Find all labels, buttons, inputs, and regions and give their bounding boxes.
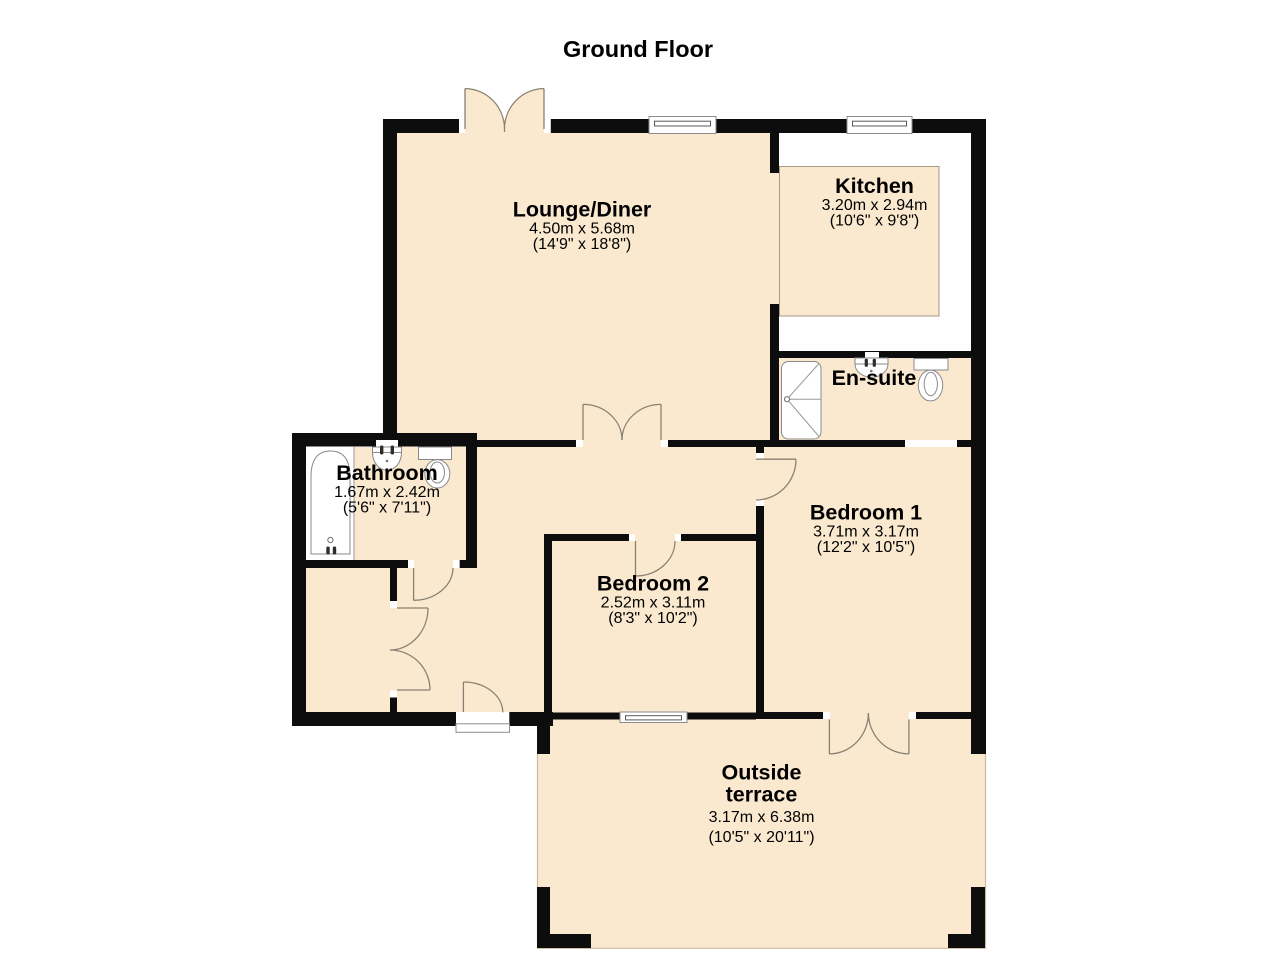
svg-text:(12'2" x 10'5"): (12'2" x 10'5")	[817, 539, 915, 556]
svg-text:En-suite: En-suite	[832, 366, 917, 390]
svg-text:terrace: terrace	[726, 783, 798, 807]
svg-text:(10'6" x 9'8"): (10'6" x 9'8")	[830, 213, 920, 230]
svg-text:Bedroom 2: Bedroom 2	[597, 572, 709, 596]
svg-text:3.17m x 6.38m: 3.17m x 6.38m	[709, 809, 815, 826]
svg-text:2.52m x 3.11m: 2.52m x 3.11m	[601, 595, 706, 612]
svg-text:(8'3" x 10'2"): (8'3" x 10'2")	[608, 610, 698, 627]
svg-text:(10'5" x 20'11"): (10'5" x 20'11")	[708, 829, 814, 846]
svg-text:(5'6" x 7'11"): (5'6" x 7'11")	[343, 500, 431, 517]
svg-text:(14'9" x 18'8"): (14'9" x 18'8")	[533, 236, 631, 253]
svg-text:Kitchen: Kitchen	[835, 174, 914, 198]
svg-text:Outside: Outside	[721, 761, 801, 785]
svg-text:Bedroom 1: Bedroom 1	[810, 501, 922, 525]
svg-text:1.67m x 2.42m: 1.67m x 2.42m	[334, 484, 440, 501]
svg-text:4.50m x 5.68m: 4.50m x 5.68m	[529, 221, 635, 238]
svg-text:3.71m x 3.17m: 3.71m x 3.17m	[813, 524, 919, 541]
svg-text:3.20m x 2.94m: 3.20m x 2.94m	[822, 197, 928, 214]
svg-text:Bathroom: Bathroom	[336, 461, 438, 485]
svg-text:Lounge/Diner: Lounge/Diner	[513, 198, 652, 222]
svg-text:Ground Floor: Ground Floor	[563, 36, 713, 62]
